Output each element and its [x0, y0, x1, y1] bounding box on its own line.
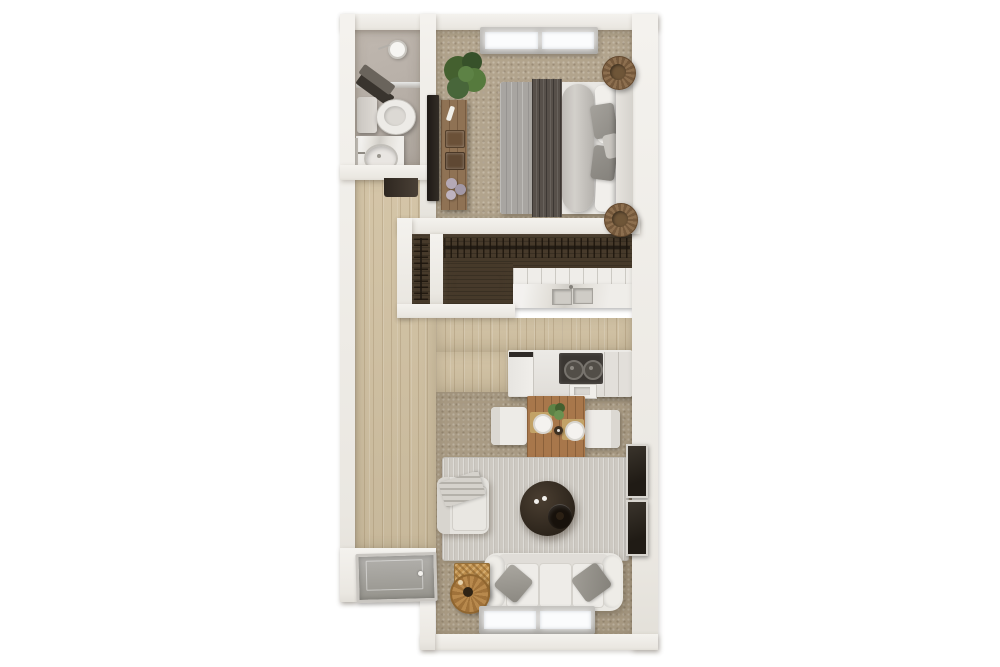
refrigerator [509, 352, 534, 396]
tv-icon [427, 95, 439, 201]
stove-burner-left [564, 360, 584, 380]
kitchen-upper-cabinets [513, 268, 632, 285]
kitchen-sink-basin-right [573, 288, 593, 304]
pouf-bottom-center [612, 211, 628, 227]
wall-left [340, 14, 355, 602]
kitchen-sink-basin-left [552, 289, 572, 305]
coffee-table-cup-2 [542, 496, 547, 501]
toilet-seat-inner [384, 106, 406, 126]
toilet-tank [357, 97, 377, 133]
bathroom-door-leaf [384, 178, 418, 197]
front-door-panel-line [366, 559, 424, 590]
kitchen-faucet-icon [569, 285, 573, 289]
wicker-basket-highlight [458, 580, 463, 585]
closet-hangers-side [414, 238, 428, 300]
wall-closet-left [397, 218, 412, 318]
bottle-cap [557, 429, 560, 432]
plant-icon [436, 48, 492, 106]
bathroom-sink-drain [377, 154, 381, 158]
wall-closet-bottom [397, 304, 515, 318]
floor-plan [0, 0, 1000, 667]
bathroom-faucet [357, 152, 365, 154]
coffee-table-cup-1 [534, 499, 539, 504]
closet-hangers-main [444, 238, 630, 258]
wall-entry-right [420, 596, 435, 650]
console-decor-sphere-3 [446, 190, 456, 200]
bedroom-window-pane-left [485, 32, 538, 49]
wall-closet-divider [430, 234, 443, 304]
art-frame-bottom [626, 500, 648, 556]
dining-chair-right-back [611, 410, 620, 448]
living-window-pane-left [484, 611, 536, 629]
living-window-pane-right [540, 611, 591, 629]
stove-burner-dot-right [589, 366, 593, 370]
closet-floor-extension [443, 262, 513, 304]
floor-plan-canvas [0, 0, 1000, 667]
wall-bottom [420, 634, 658, 650]
prep-sink-basin [574, 387, 590, 395]
plate-right [565, 421, 585, 441]
console-tray-1 [445, 130, 465, 148]
pouf-top-center [610, 64, 626, 80]
centerpiece-plant-icon [546, 401, 568, 423]
console-decor-sphere-2 [455, 184, 466, 195]
refrigerator-top-seam [509, 352, 533, 357]
console-tray-2 [445, 152, 465, 170]
front-door-handle-icon [418, 571, 423, 576]
art-frame-top [626, 444, 648, 498]
coffee-table-bowl-center [556, 512, 564, 520]
kitchen-lower-cabinet-right [604, 352, 632, 396]
towel-bar [355, 138, 358, 168]
bed-throw-dark [532, 79, 562, 217]
sofa-cushion-2 [539, 563, 572, 608]
wicker-basket-hole [463, 587, 473, 597]
bed-duvet-roll [562, 84, 594, 212]
dining-chair-left-back [491, 407, 500, 445]
kitchen-floor [436, 318, 632, 352]
stove-burner-right [583, 360, 603, 380]
shower-head-icon [388, 40, 407, 59]
kitchen-floor-left [436, 352, 510, 392]
stove-burner-dot-left [570, 366, 574, 370]
bed-headboard [616, 76, 633, 218]
bedroom-window-pane-right [542, 32, 594, 49]
